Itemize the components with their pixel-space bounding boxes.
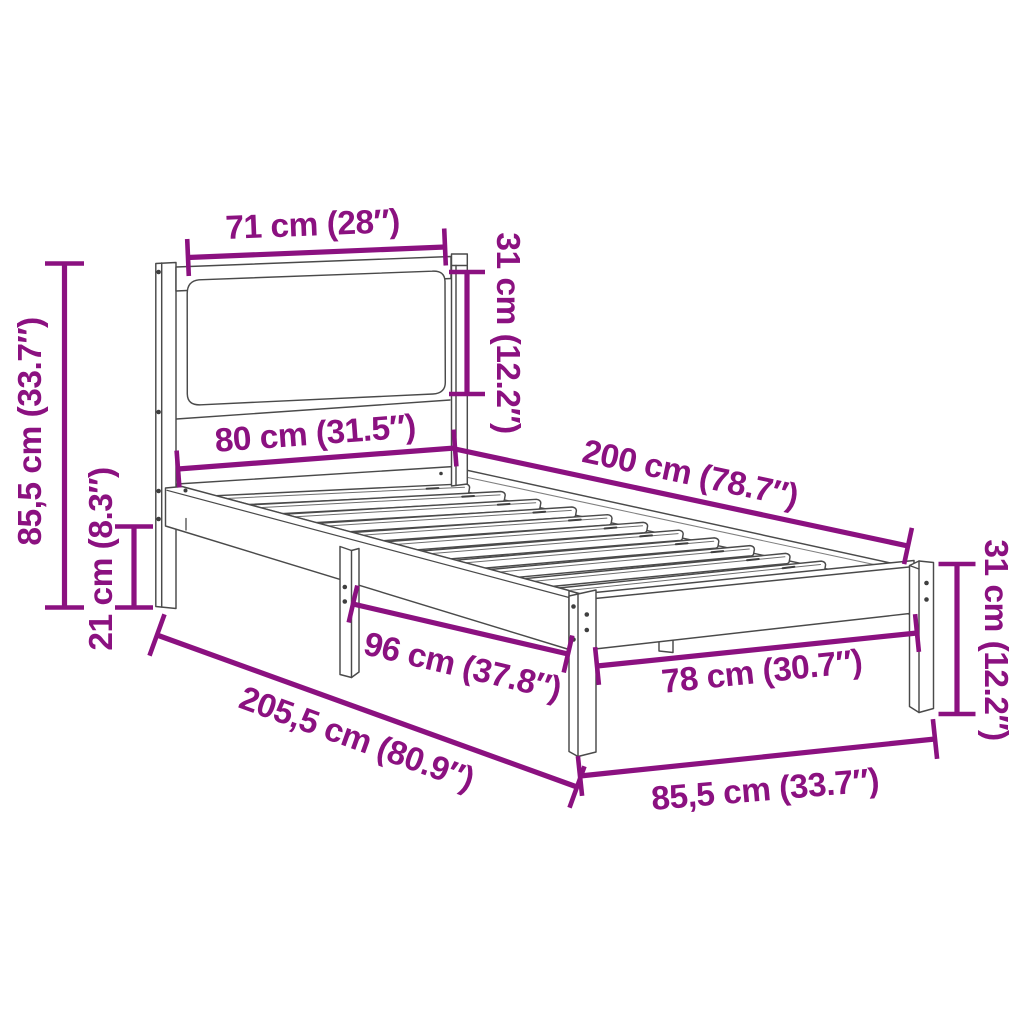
svg-text:21 cm (8.3″): 21 cm (8.3″)	[83, 467, 120, 650]
svg-text:31 cm (12.2″): 31 cm (12.2″)	[977, 539, 1014, 740]
svg-text:31 cm (12.2″): 31 cm (12.2″)	[489, 232, 526, 433]
svg-text:85,5 cm (33.7″): 85,5 cm (33.7″)	[12, 317, 49, 545]
svg-text:71 cm (28″): 71 cm (28″)	[225, 203, 401, 247]
